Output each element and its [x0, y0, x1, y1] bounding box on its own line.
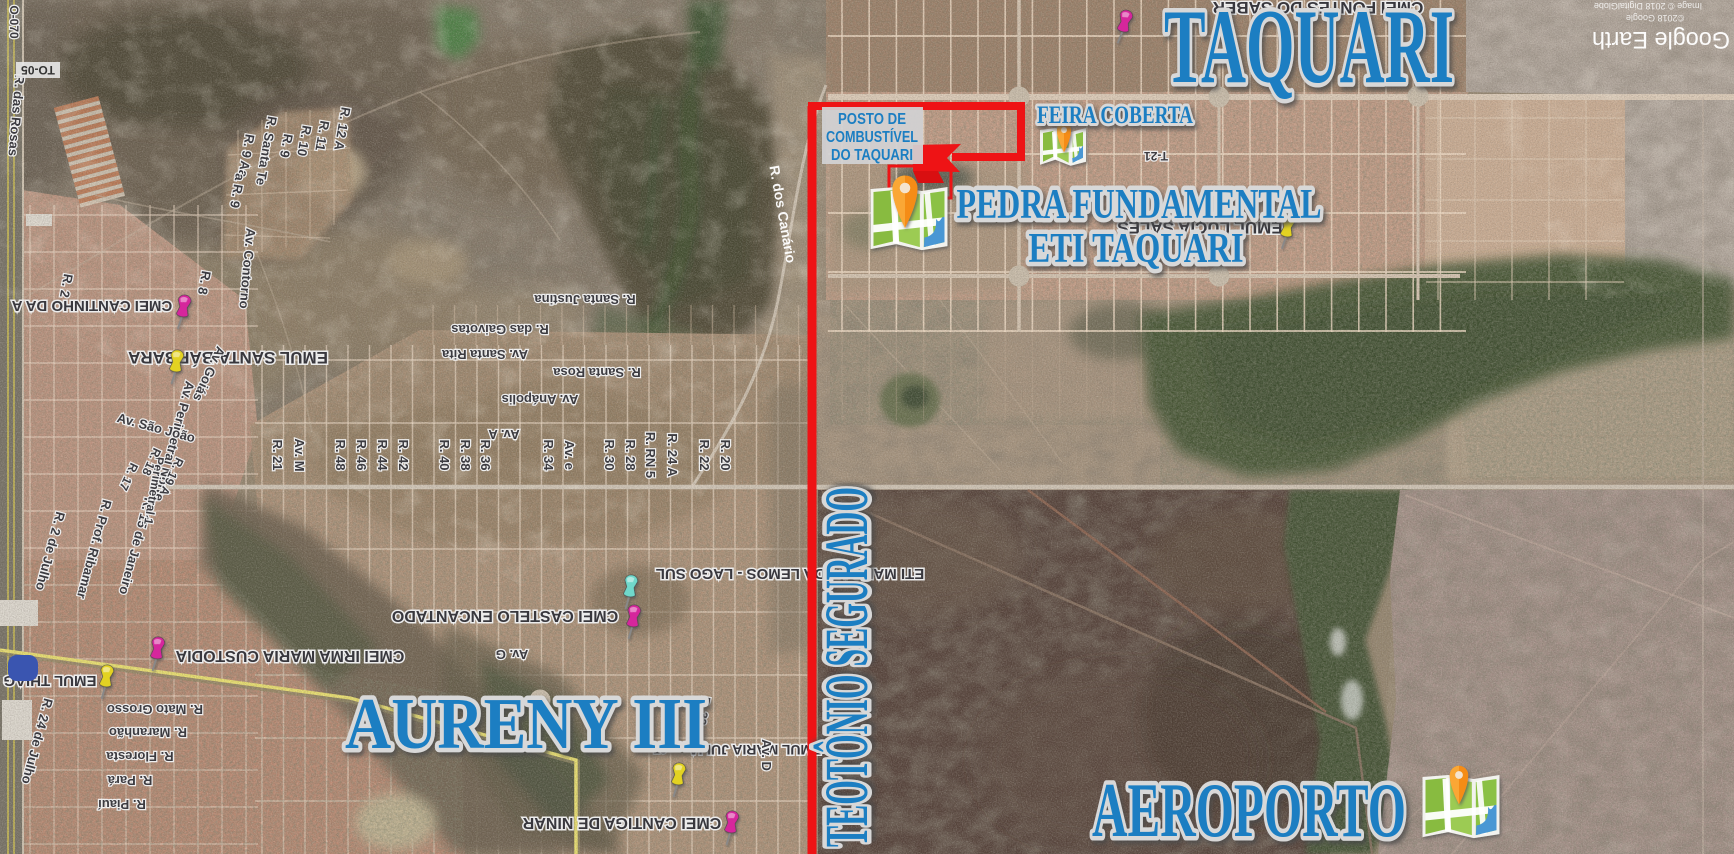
svg-text:R. Mato Grosso: R. Mato Grosso: [107, 702, 203, 717]
svg-text:AURENY III: AURENY III: [345, 683, 707, 764]
svg-text:R. 44: R. 44: [375, 439, 390, 471]
svg-text:TAQUARI: TAQUARI: [1164, 0, 1454, 105]
svg-text:R. Piauí: R. Piauí: [98, 797, 146, 812]
svg-text:R. Santa Rosa: R. Santa Rosa: [553, 365, 641, 380]
svg-text:R. 28: R. 28: [623, 439, 638, 470]
svg-text:CMEI CANTIGA DE NINAR: CMEI CANTIGA DE NINAR: [522, 814, 721, 831]
svg-text:R. 22: R. 22: [697, 439, 712, 470]
svg-text:R. RN 5: R. RN 5: [643, 432, 658, 478]
svg-text:©2018 Google: ©2018 Google: [1626, 13, 1684, 23]
svg-text:O-070: O-070: [7, 5, 21, 39]
svg-text:R. 20: R. 20: [718, 439, 733, 470]
svg-text:R. Santa Justina: R. Santa Justina: [534, 292, 636, 307]
svg-text:COMBUSTÍVEL: COMBUSTÍVEL: [826, 127, 918, 146]
svg-text:ETI MARGARIDA LEMOS - LAGO SUL: ETI MARGARIDA LEMOS - LAGO SUL: [656, 565, 925, 582]
svg-text:Av. e: Av. e: [562, 440, 577, 470]
svg-text:R. Pará: R. Pará: [107, 773, 153, 788]
svg-text:Av. M: Av. M: [292, 438, 307, 471]
svg-text:CMEI IRMA MARIA CUSTODIA: CMEI IRMA MARIA CUSTODIA: [175, 647, 404, 664]
svg-text:R. 21: R. 21: [270, 439, 285, 470]
svg-text:T-21: T-21: [1144, 149, 1168, 163]
svg-text:R. 30: R. 30: [602, 439, 617, 470]
svg-text:TEOTÔNIO SEGURADO: TEOTÔNIO SEGURADO: [813, 487, 881, 847]
svg-text:R. 38: R. 38: [458, 439, 473, 470]
svg-text:R. 40: R. 40: [437, 439, 452, 470]
svg-text:R. Floresta: R. Floresta: [106, 749, 174, 764]
svg-text:Av. Anápolis: Av. Anápolis: [502, 392, 579, 407]
svg-text:R. 48: R. 48: [333, 439, 348, 470]
svg-text:R. das Gaivotas: R. das Gaivotas: [451, 322, 549, 337]
svg-text:AEROPORTO: AEROPORTO: [1092, 767, 1406, 853]
svg-text:ETI TAQUARI: ETI TAQUARI: [1029, 226, 1244, 272]
svg-text:Av. D: Av. D: [759, 739, 774, 771]
svg-text:FEIRA COBERTA: FEIRA COBERTA: [1037, 102, 1193, 129]
svg-text:EMUL MARIA JULIA: EMUL MARIA JULIA: [689, 742, 822, 758]
svg-text:R. 34: R. 34: [541, 439, 556, 471]
svg-text:Av. Santa Rita: Av. Santa Rita: [441, 347, 528, 362]
svg-text:DO TAQUARI: DO TAQUARI: [831, 147, 913, 164]
svg-text:Image © 2018 DigitalGlobe: Image © 2018 DigitalGlobe: [1594, 1, 1702, 11]
svg-text:PEDRA FUNDAMENTAL: PEDRA FUNDAMENTAL: [957, 182, 1322, 228]
svg-text:CMEI CANTINHO DA A: CMEI CANTINHO DA A: [12, 297, 173, 314]
svg-text:Av. G: Av. G: [496, 647, 529, 662]
svg-text:TO-05: TO-05: [21, 63, 55, 77]
svg-text:Google Earth: Google Earth: [1592, 26, 1730, 53]
svg-text:R. 42: R. 42: [396, 439, 411, 470]
svg-text:R. 36: R. 36: [478, 439, 493, 470]
svg-text:R. 24 A: R. 24 A: [665, 433, 680, 477]
svg-text:POSTO DE: POSTO DE: [838, 111, 906, 128]
svg-text:CMEI CASTELO ENCANTADO: CMEI CASTELO ENCANTADO: [392, 607, 618, 624]
svg-text:R. Maranhão: R. Maranhão: [109, 725, 187, 740]
svg-text:R. 46: R. 46: [354, 439, 369, 470]
